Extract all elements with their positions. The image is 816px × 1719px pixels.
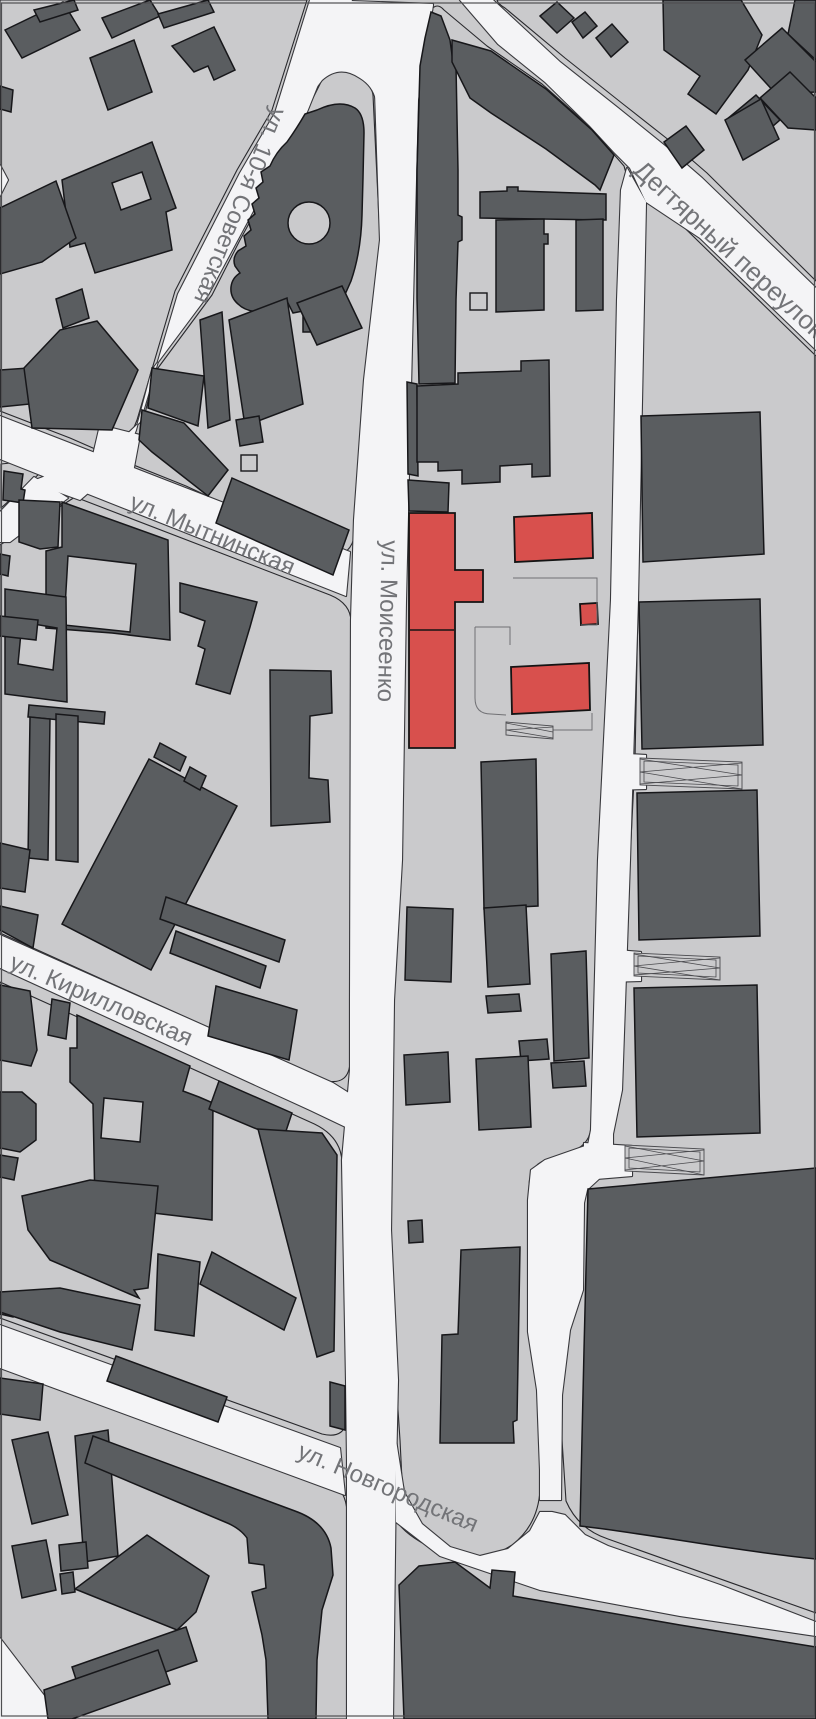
- svg-text:ул. Моисеенко: ул. Моисеенко: [372, 540, 403, 703]
